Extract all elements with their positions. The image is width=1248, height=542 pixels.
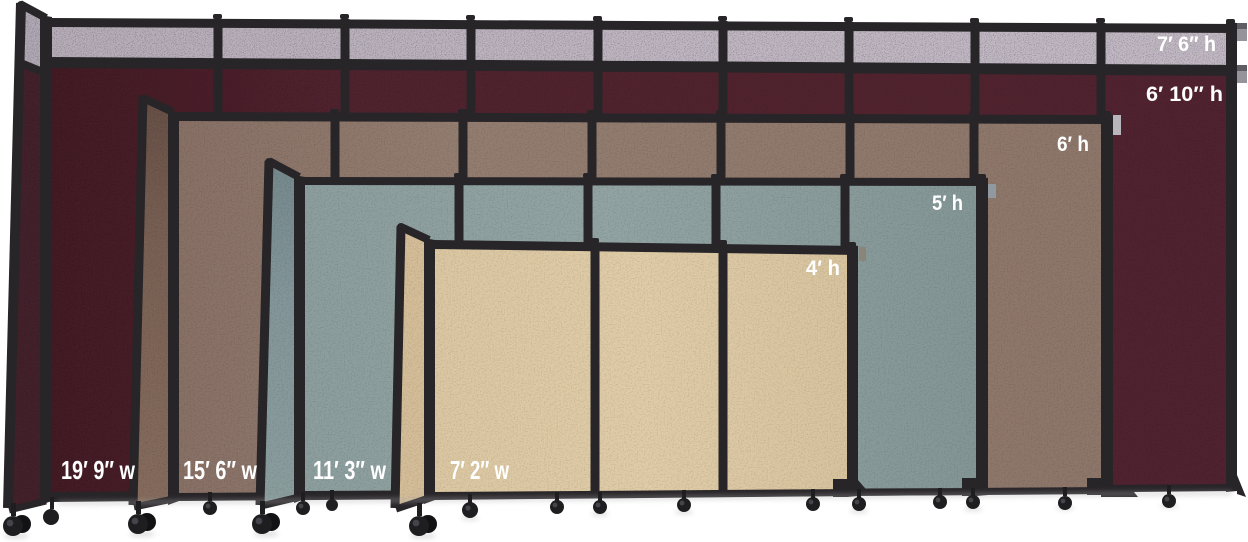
svg-text:5′ h: 5′ h [932,192,963,215]
svg-text:4′ h: 4′ h [806,257,840,280]
svg-text:6′ h: 6′ h [1057,133,1089,156]
svg-text:7′ 6″ h: 7′ 6″ h [1157,33,1216,56]
svg-text:15′ 6″ w: 15′ 6″ w [183,455,258,485]
svg-text:11′ 3″ w: 11′ 3″ w [313,455,387,485]
svg-text:6′ 10″ h: 6′ 10″ h [1146,83,1223,106]
svg-text:7′ 2″ w: 7′ 2″ w [450,455,510,485]
svg-text:19′ 9″ w: 19′ 9″ w [61,455,136,485]
